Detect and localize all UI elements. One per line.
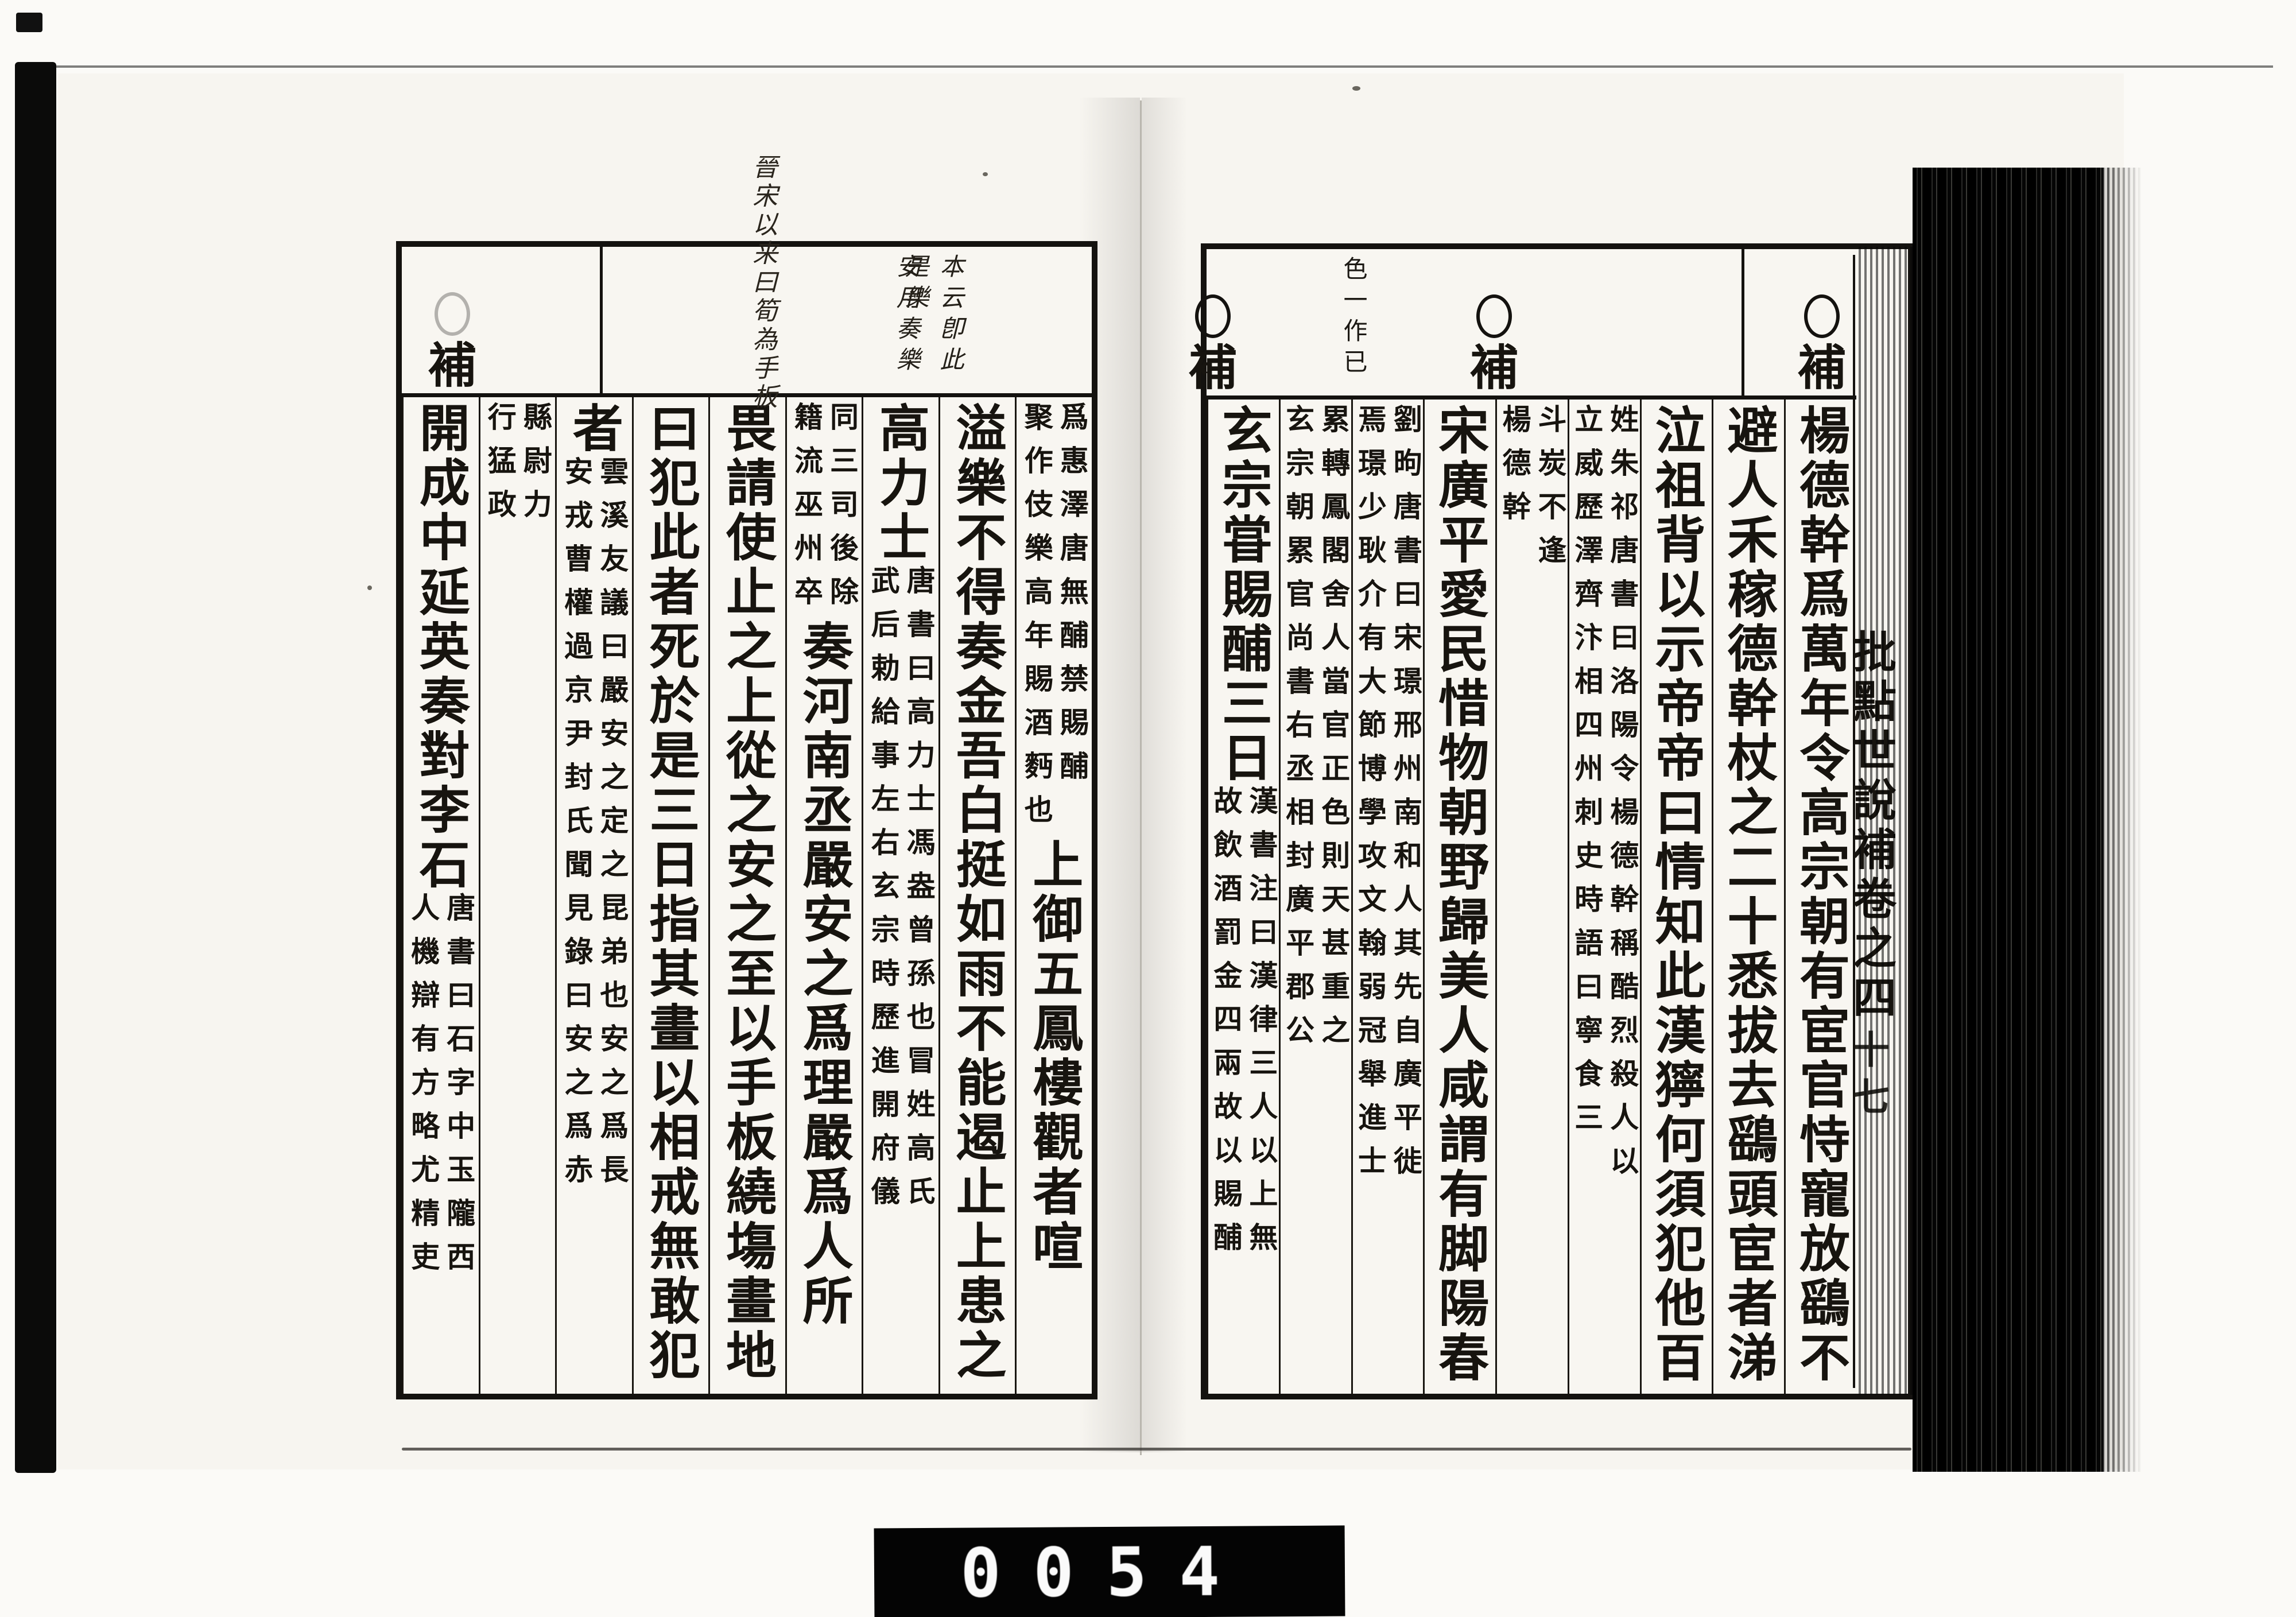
scan-corner-artifact — [16, 13, 42, 32]
commentary-right-subcolumn: 同三司後除 — [826, 402, 858, 620]
spine-shadow-band — [1913, 168, 2103, 1472]
text-column: 玄宗甞賜酺三日漢書注曰漢律三人以上無故飲酒罰金四兩故以賜酺 — [1207, 400, 1279, 1394]
main-text-block: 玄宗甞賜酺三日 — [1218, 404, 1269, 786]
text-column: 畏請使止之上從之安之至以手板繞塲畫地 — [708, 397, 785, 1394]
main-text-block: 泣祖背以示帝帝曰情知此漢獰何須犯他百 — [1651, 404, 1702, 1386]
supplement-mark-glyph: 補 — [428, 339, 476, 392]
commentary-right-subcolumn: 縣尉力 — [519, 402, 552, 533]
commentary-double-column: 斗炭不逢楊德幹 — [1498, 404, 1566, 579]
commentary-left-subcolumn: 武后勅給事左右玄宗時歷進開府儀 — [867, 565, 899, 1220]
commentary-double-column: 雲溪友議曰嚴安之定之昆弟也安之爲長安戎曹權過京尹封氏聞見錄曰安之爲赤 — [560, 456, 628, 1198]
left-page-frame: 補 本云卽此是樂安用奏樂 爲惠澤唐無酺禁賜酺聚作伎樂高年賜酒麪也上御五鳳樓觀者喧… — [396, 241, 1097, 1399]
commentary-left-subcolumn: 焉璟少耿介有大節博學攻文翰弱冠舉進士 — [1354, 404, 1386, 1189]
circle-icon — [1476, 294, 1512, 338]
text-column: 曰犯此者死於是三日指其畫以相戒無敢犯 — [632, 397, 709, 1394]
right-page-header-strip: 補補補 色一作已 — [1207, 249, 1856, 400]
main-text-block: 曰犯此者死於是三日指其畫以相戒無敢犯 — [646, 402, 696, 1383]
supplement-entry-mark: 補 — [1186, 294, 1239, 394]
text-column: 開成中延英奏對李石唐書曰石字中玉隴西人機辯有方略尤精吏 — [402, 397, 479, 1394]
main-text-block: 上御五鳳樓觀者喧 — [1029, 838, 1080, 1274]
text-column: 同三司後除籍流巫州卒奏河南丞嚴安之爲理嚴爲人所 — [785, 397, 862, 1394]
text-column: 泣祖背以示帝帝曰情知此漢獰何須犯他百 — [1640, 400, 1712, 1394]
commentary-double-column: 唐書曰石字中玉隴西人機辯有方略尤精吏 — [407, 893, 475, 1285]
supplement-entry-mark: 補 — [426, 292, 479, 392]
commentary-double-column: 爲惠澤唐無酺禁賜酺聚作伎樂高年賜酒麪也 — [1021, 402, 1088, 838]
commentary-double-column: 姓朱祁唐書曰洛陽令楊德幹稱酷烈殺人以立威歷澤齊汴相四州刺史時語曰寧食三 — [1570, 404, 1638, 1189]
commentary-double-column: 唐書曰高力士馮盎曾孫也冒姓高氏武后勅給事左右玄宗時歷進開府儀 — [867, 565, 935, 1220]
commentary-right-subcolumn: 唐書曰高力士馮盎曾孫也冒姓高氏 — [903, 565, 935, 1220]
commentary-double-column: 累轉鳳閣舍人當官正色則天甚重之玄宗朝累官尚書右丞相封廣平郡公 — [1282, 404, 1349, 1058]
right-page-columns: 楊德幹爲萬年令高宗朝有宦官恃寵放鷂不避人禾稼德幹杖之二十悉拔去鷂頭宦者涕泣祖背以… — [1207, 400, 1856, 1394]
commentary-left-subcolumn: 籍流巫州卒 — [790, 402, 823, 620]
page-bottom-edge-line — [402, 1448, 1911, 1451]
commentary-double-column: 漢書注曰漢律三人以上無故飲酒罰金四兩故以賜酺 — [1209, 786, 1277, 1266]
scan-top-edge-line — [52, 65, 2273, 68]
commentary-right-subcolumn: 累轉鳳閣舍人當官正色則天甚重之 — [1317, 404, 1349, 1058]
text-column: 累轉鳳閣舍人當官正色則天甚重之玄宗朝累官尚書右丞相封廣平郡公 — [1279, 400, 1351, 1394]
commentary-right-subcolumn: 唐書曰石字中玉隴西 — [443, 893, 475, 1285]
commentary-left-subcolumn: 安戎曹權過京尹封氏聞見錄曰安之爲赤 — [560, 456, 592, 1198]
text-column: 溢樂不得奏金吾白挺如雨不能遏止上患之 — [938, 397, 1015, 1394]
main-text-block: 開成中延英奏對李石 — [416, 402, 466, 893]
commentary-left-subcolumn: 玄宗朝累官尚書右丞相封廣平郡公 — [1282, 404, 1314, 1058]
left-page-columns: 爲惠澤唐無酺禁賜酺聚作伎樂高年賜酒麪也上御五鳳樓觀者喧溢樂不得奏金吾白挺如雨不能… — [402, 397, 1092, 1394]
scan-speck — [1352, 86, 1360, 91]
commentary-left-subcolumn: 聚作伎樂高年賜酒麪也 — [1021, 402, 1053, 838]
main-text-block: 奏河南丞嚴安之爲理嚴爲人所 — [799, 620, 850, 1329]
text-column: 姓朱祁唐書曰洛陽令楊德幹稱酷烈殺人以立威歷澤齊汴相四州刺史時語曰寧食三 — [1568, 400, 1640, 1394]
text-column: 者雲溪友議曰嚴安之定之昆弟也安之爲長安戎曹權過京尹封氏聞見錄曰安之爲赤 — [555, 397, 632, 1394]
commentary-right-subcolumn: 姓朱祁唐書曰洛陽令楊德幹稱酷烈殺人以 — [1606, 404, 1638, 1189]
main-text-block: 溢樂不得奏金吾白挺如雨不能遏止上患之 — [952, 402, 1003, 1383]
commentary-left-subcolumn: 行猛政 — [484, 402, 516, 533]
main-text-block: 避人禾稼德幹杖之二十悉拔去鷂頭宦者涕 — [1724, 404, 1774, 1386]
header-brush-annotation: 安用奏樂 — [889, 254, 924, 378]
supplement-entry-mark: 補 — [1795, 294, 1848, 394]
text-column: 劉昫唐書曰宋璟邢州南和人其先自廣平徙焉璟少耿介有大節博學攻文翰弱冠舉進士 — [1351, 400, 1424, 1394]
commentary-right-subcolumn: 爲惠澤唐無酺禁賜酺 — [1056, 402, 1088, 838]
scan-speck — [983, 172, 988, 176]
commentary-left-subcolumn: 立威歷澤齊汴相四州刺史時語曰寧食三 — [1570, 404, 1603, 1189]
commentary-right-subcolumn: 劉昫唐書曰宋璟邢州南和人其先自廣平徙 — [1390, 404, 1422, 1189]
commentary-double-column: 縣尉力行猛政 — [484, 402, 552, 533]
scan-left-edge-bar — [15, 62, 56, 1473]
text-column: 爲惠澤唐無酺禁賜酺聚作伎樂高年賜酒麪也上御五鳳樓觀者喧 — [1015, 397, 1092, 1394]
commentary-left-subcolumn: 楊德幹 — [1498, 404, 1530, 579]
title-column-streaks — [1859, 247, 1914, 1395]
text-column: 高力士唐書曰高力士馮盎曾孫也冒姓高氏武后勅給事左右玄宗時歷進開府儀 — [862, 397, 938, 1394]
header-variant-note: 色一作已 — [1336, 256, 1371, 380]
text-column: 縣尉力行猛政 — [479, 397, 556, 1394]
circle-icon — [435, 292, 470, 336]
main-text-block: 者 — [569, 402, 619, 456]
gutter-shadow-right — [1142, 98, 1188, 1452]
text-column: 楊德幹爲萬年令高宗朝有宦官恃寵放鷂不 — [1784, 400, 1856, 1394]
supplement-mark-glyph: 補 — [1798, 342, 1846, 394]
counter-digits: 0054 — [874, 1531, 1252, 1613]
text-column: 斗炭不逢楊德幹 — [1495, 400, 1568, 1394]
commentary-left-subcolumn: 人機辯有方略尤精吏 — [407, 893, 439, 1285]
right-header-divider — [1742, 249, 1744, 395]
microfilm-frame-counter: 0054 — [874, 1525, 1345, 1617]
main-text-block: 宋廣平愛民惜物朝野歸美人咸謂有脚陽春 — [1435, 404, 1486, 1386]
commentary-right-subcolumn: 漢書注曰漢律三人以上無 — [1245, 786, 1277, 1266]
supplement-mark-glyph: 補 — [1470, 342, 1518, 394]
right-page-frame: 批點世說補卷之四 十七 補補補 色一作已 楊德幹爲萬年令高宗朝有宦官恃寵放鷂不避… — [1201, 243, 1914, 1399]
circle-icon — [1804, 294, 1840, 338]
left-header-divider — [600, 247, 603, 393]
supplement-entry-mark: 補 — [1468, 294, 1521, 394]
commentary-left-subcolumn: 故飲酒罰金四兩故以賜酺 — [1209, 786, 1242, 1266]
scan-speck — [367, 585, 372, 590]
main-text-block: 畏請使止之上從之安之至以手板繞塲畫地 — [722, 402, 773, 1383]
spine-shadow-fade — [2102, 168, 2142, 1472]
supplement-mark-glyph: 補 — [1189, 342, 1237, 394]
circle-icon — [1195, 294, 1231, 338]
scanned-book-spread: 補 本云卽此是樂安用奏樂 爲惠澤唐無酺禁賜酺聚作伎樂高年賜酒麪也上御五鳳樓觀者喧… — [0, 0, 2296, 1617]
commentary-right-subcolumn: 雲溪友議曰嚴安之定之昆弟也安之爲長 — [596, 456, 628, 1198]
main-text-block: 高力士 — [876, 402, 926, 565]
handwritten-margin-annotation: 晉宋以来曰筍為手板 — [744, 154, 781, 412]
commentary-right-subcolumn: 斗炭不逢 — [1534, 404, 1566, 579]
commentary-double-column: 劉昫唐書曰宋璟邢州南和人其先自廣平徙焉璟少耿介有大節博學攻文翰弱冠舉進士 — [1354, 404, 1422, 1189]
text-column: 避人禾稼德幹杖之二十悉拔去鷂頭宦者涕 — [1712, 400, 1784, 1394]
main-text-block: 楊德幹爲萬年令高宗朝有宦官恃寵放鷂不 — [1796, 404, 1847, 1386]
text-column: 宋廣平愛民惜物朝野歸美人咸謂有脚陽春 — [1423, 400, 1495, 1394]
commentary-double-column: 同三司後除籍流巫州卒 — [790, 402, 858, 620]
